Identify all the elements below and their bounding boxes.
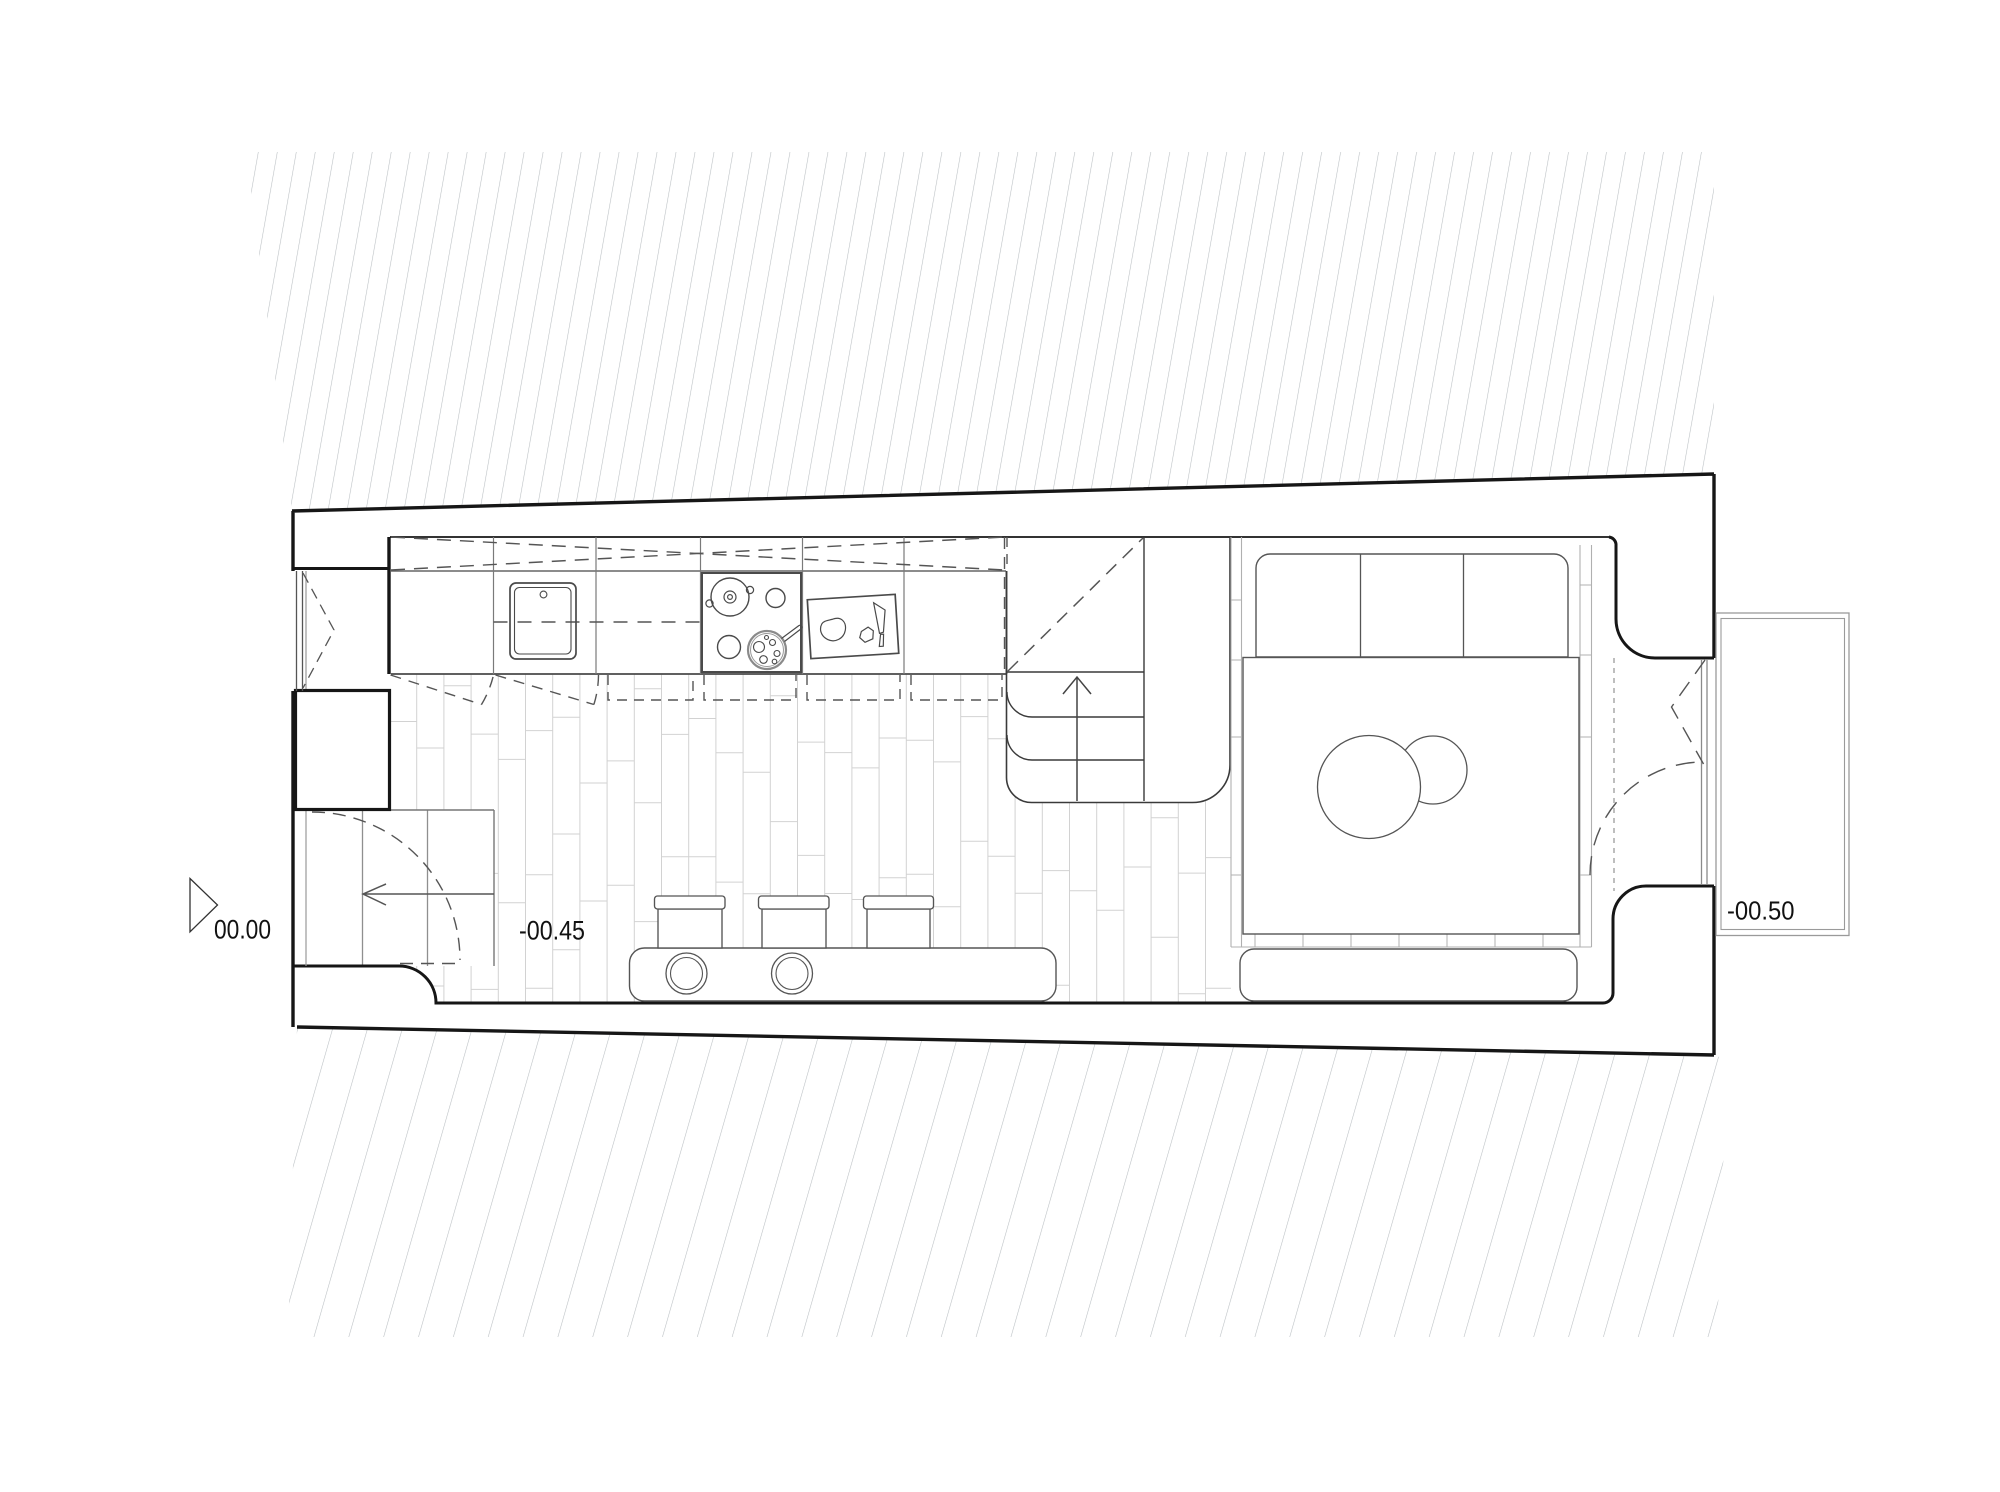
svg-text:-00.50: -00.50 <box>1727 896 1795 926</box>
svg-text:-00.45: -00.45 <box>519 916 585 946</box>
svg-text:00.00: 00.00 <box>214 915 271 945</box>
